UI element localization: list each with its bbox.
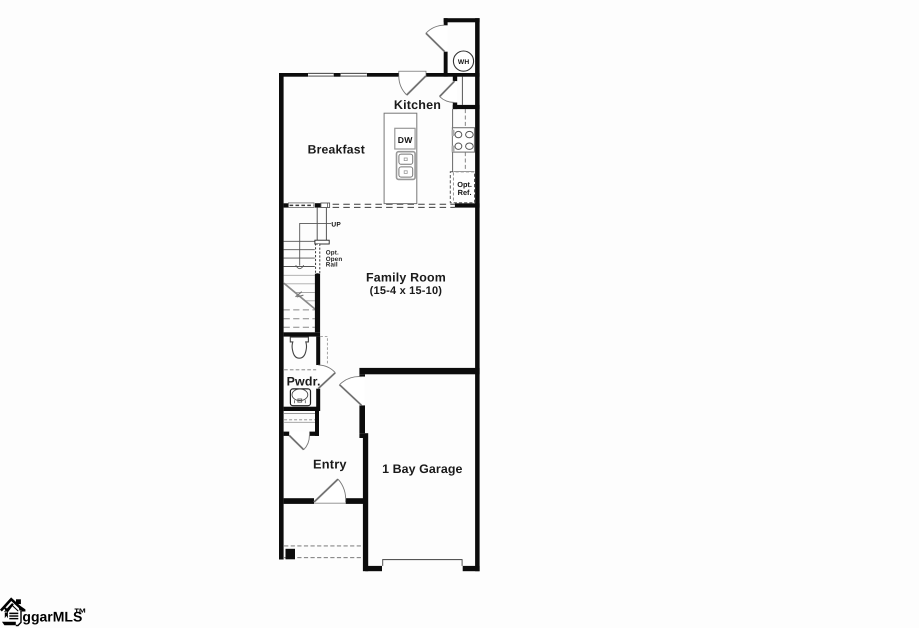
svg-text:Family Room: Family Room [366, 270, 446, 284]
svg-text:Pwdr.: Pwdr. [287, 375, 321, 389]
svg-text:WH: WH [458, 59, 469, 66]
svg-text:(15-4 x 15-10): (15-4 x 15-10) [370, 285, 443, 297]
svg-text:UP: UP [331, 221, 341, 228]
svg-text:DW: DW [398, 135, 414, 145]
svg-text:1 Bay Garage: 1 Bay Garage [382, 462, 462, 476]
svg-text:Ref.: Ref. [458, 188, 472, 197]
svg-text:™: ™ [74, 606, 87, 621]
svg-text:Breakfast: Breakfast [308, 143, 365, 157]
svg-text:Kitchen: Kitchen [394, 98, 441, 112]
svg-text:Rail: Rail [326, 262, 338, 269]
svg-text:Entry: Entry [313, 456, 347, 471]
